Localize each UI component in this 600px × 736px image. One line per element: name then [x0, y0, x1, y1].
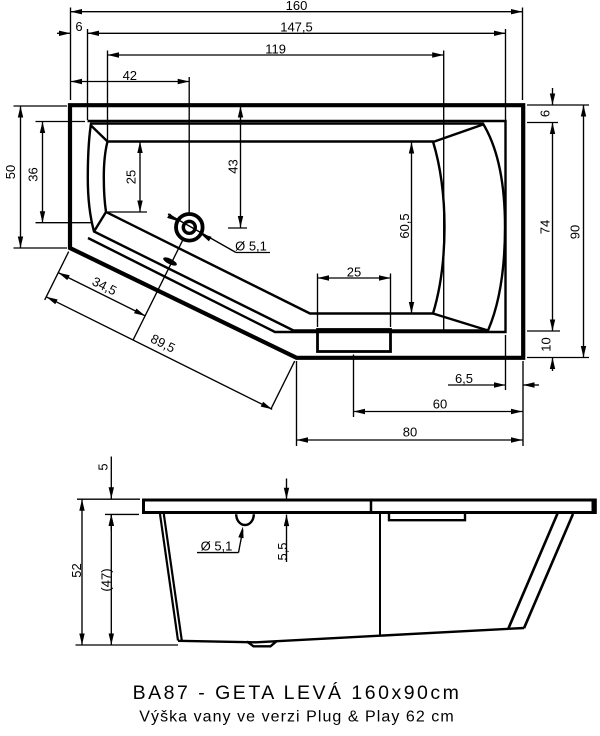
svg-text:119: 119 — [265, 41, 286, 56]
svg-text:90: 90 — [568, 225, 583, 239]
svg-text:Ø 5,1: Ø 5,1 — [201, 538, 233, 553]
svg-text:147,5: 147,5 — [280, 20, 313, 35]
svg-text:6,5: 6,5 — [455, 371, 473, 386]
svg-text:Výška vany ve verzi Plug & Pla: Výška vany ve verzi Plug & Play 62 cm — [139, 709, 454, 726]
svg-text:36: 36 — [26, 167, 41, 181]
svg-text:5,5: 5,5 — [275, 542, 290, 560]
svg-text:60,5: 60,5 — [397, 213, 412, 238]
svg-text:Ø 5,1: Ø 5,1 — [235, 239, 267, 254]
svg-text:52: 52 — [69, 563, 84, 577]
svg-text:25: 25 — [124, 170, 139, 184]
svg-text:89,5: 89,5 — [148, 331, 177, 356]
svg-text:160: 160 — [286, 0, 308, 13]
svg-text:34,5: 34,5 — [90, 274, 119, 299]
svg-text:50: 50 — [3, 165, 18, 179]
svg-text:25: 25 — [347, 264, 361, 279]
svg-text:6: 6 — [538, 110, 553, 117]
svg-text:43: 43 — [226, 159, 241, 173]
svg-text:10: 10 — [539, 337, 554, 351]
svg-text:42: 42 — [123, 68, 137, 83]
svg-text:74: 74 — [538, 220, 553, 234]
svg-text:5: 5 — [96, 463, 111, 470]
svg-text:80: 80 — [403, 425, 417, 440]
svg-text:(47): (47) — [99, 568, 114, 591]
svg-text:BA87 - GETA LEVÁ 160x90cm: BA87 - GETA LEVÁ 160x90cm — [133, 681, 462, 704]
svg-text:60: 60 — [433, 397, 447, 412]
svg-text:6: 6 — [75, 19, 82, 34]
